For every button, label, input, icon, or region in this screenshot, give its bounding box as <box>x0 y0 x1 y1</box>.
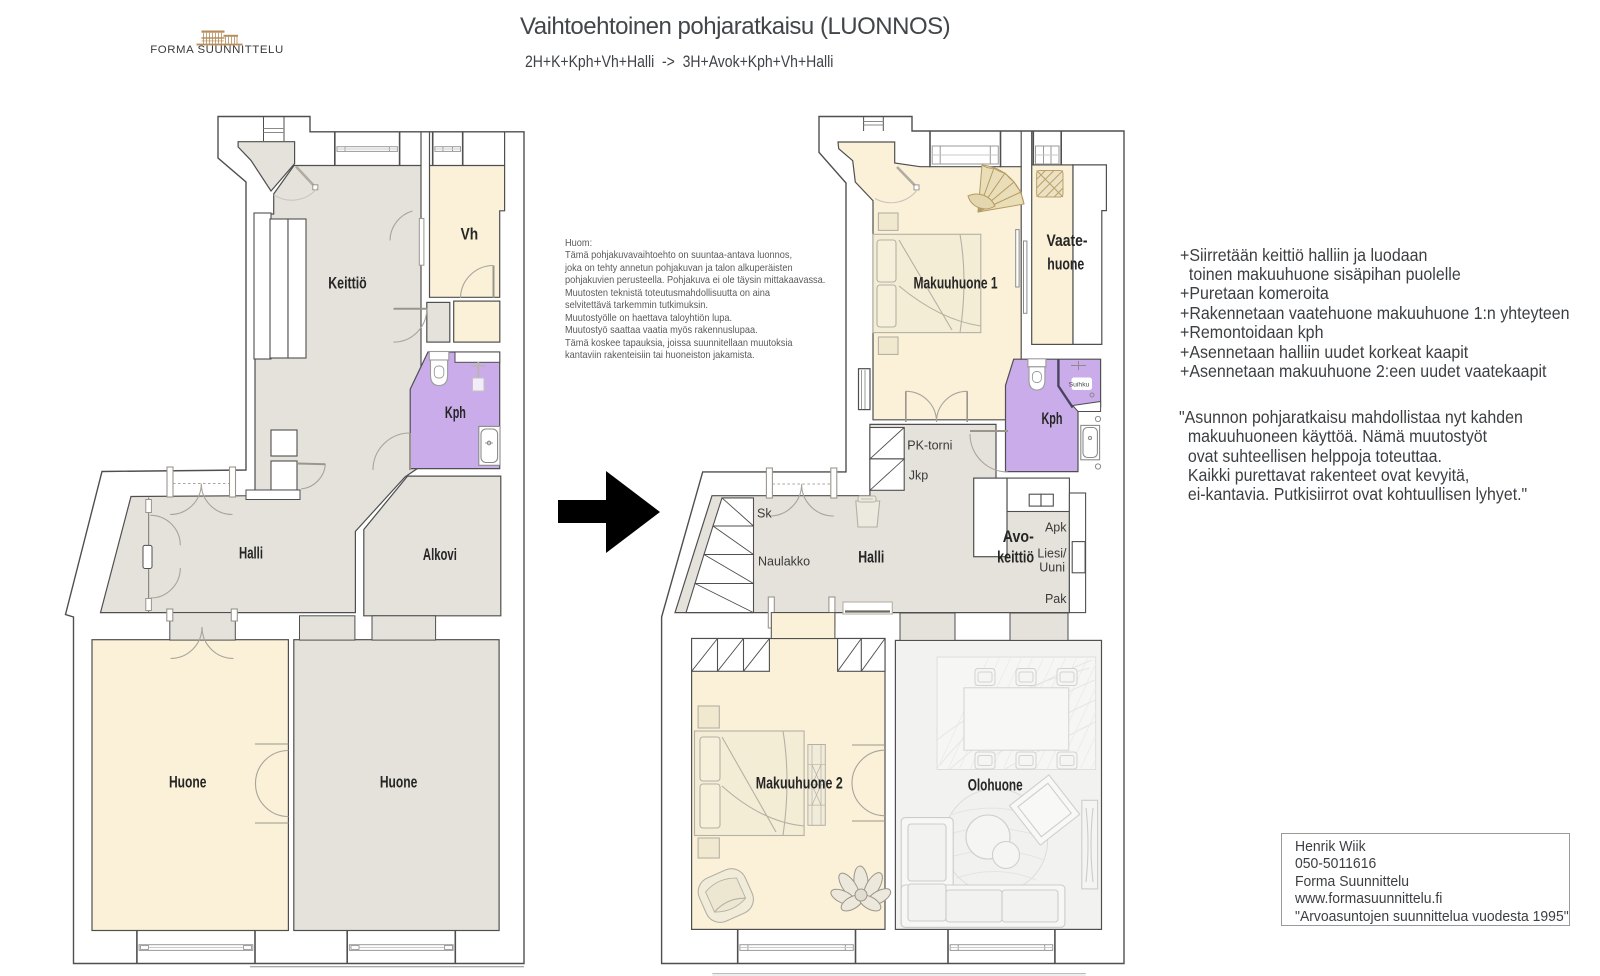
svg-text:Halli: Halli <box>239 544 263 562</box>
svg-text:Olohuone: Olohuone <box>968 777 1023 795</box>
svg-text:Liesi/: Liesi/ <box>1037 547 1067 561</box>
svg-text:Halli: Halli <box>858 549 884 567</box>
svg-text:Alkovi: Alkovi <box>423 546 457 564</box>
svg-text:huone: huone <box>1047 256 1084 274</box>
svg-text:Huone: Huone <box>169 774 207 792</box>
svg-text:Sk: Sk <box>757 507 772 521</box>
svg-text:Makuuhuone 1: Makuuhuone 1 <box>914 274 998 292</box>
svg-text:Suihku: Suihku <box>1069 382 1090 389</box>
svg-text:keittiö: keittiö <box>997 549 1034 567</box>
svg-text:Avo-: Avo- <box>1003 528 1034 546</box>
svg-text:Vaate-: Vaate- <box>1047 232 1088 250</box>
svg-text:Kph: Kph <box>1042 410 1063 428</box>
svg-text:Jkp: Jkp <box>909 469 929 483</box>
svg-text:Kph: Kph <box>445 404 466 422</box>
svg-text:PK-torni: PK-torni <box>907 439 952 453</box>
svg-text:Uuni: Uuni <box>1039 561 1065 575</box>
svg-text:Vh: Vh <box>461 226 479 244</box>
svg-text:Keittiö: Keittiö <box>328 274 367 292</box>
svg-text:Apk: Apk <box>1045 521 1067 535</box>
svg-text:Pak: Pak <box>1045 592 1067 606</box>
svg-text:Makuuhuone 2: Makuuhuone 2 <box>756 775 843 793</box>
svg-text:Huone: Huone <box>380 774 418 792</box>
svg-text:Naulakko: Naulakko <box>758 554 810 568</box>
